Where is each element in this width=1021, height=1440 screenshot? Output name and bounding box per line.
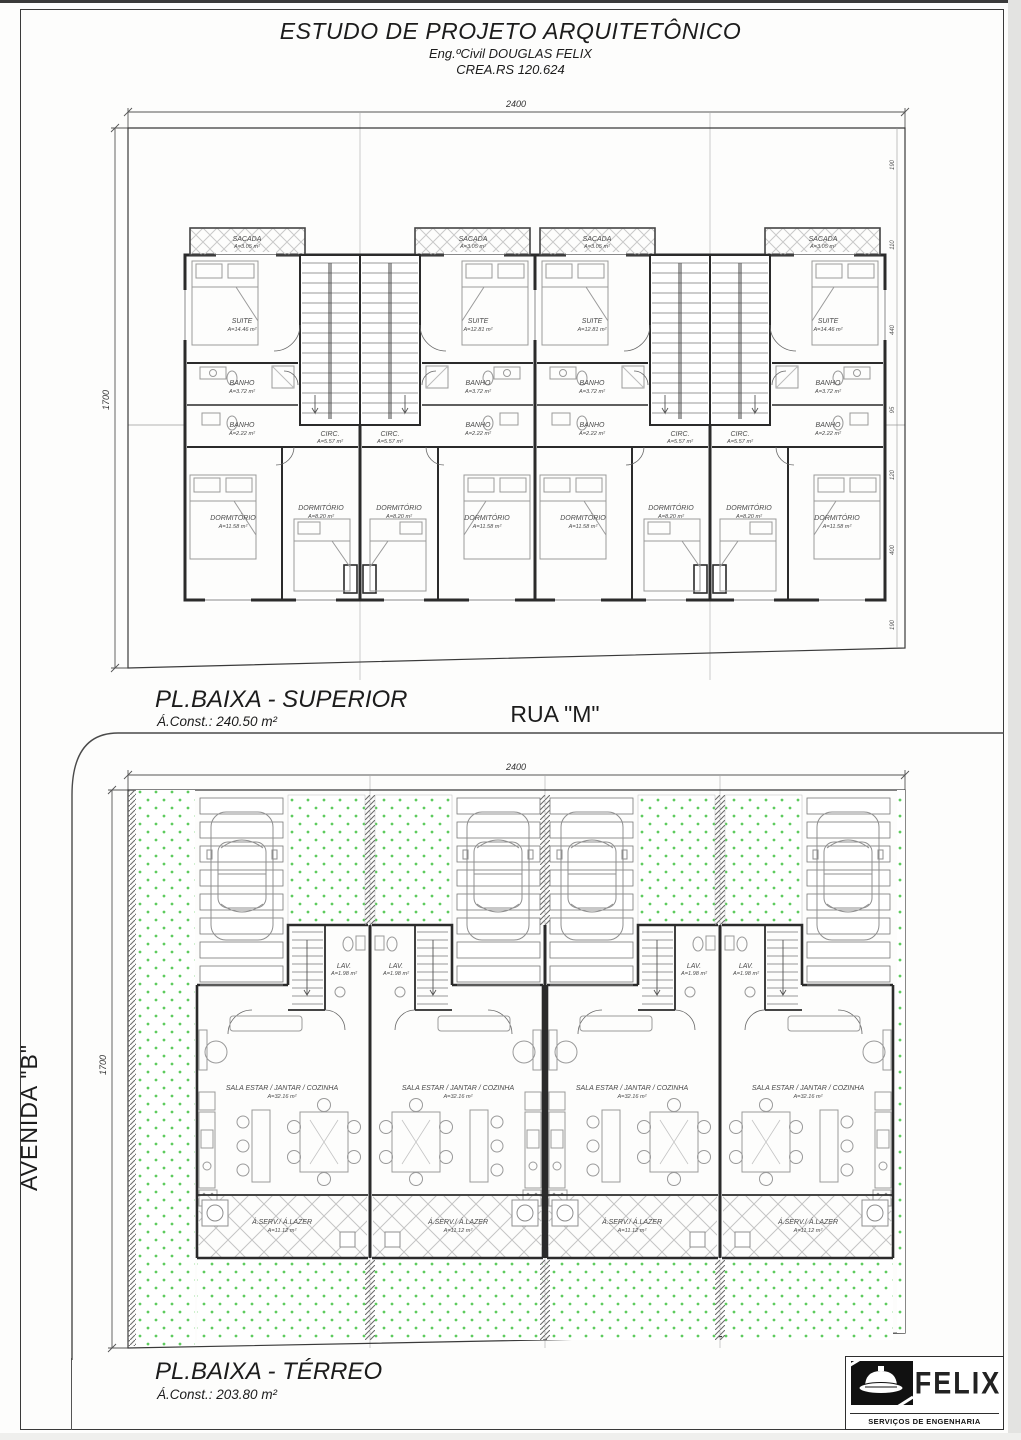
room-label: BANHO xyxy=(580,380,605,387)
avenue-line-extension xyxy=(71,1358,72,1430)
upper-unit-2 xyxy=(360,228,538,603)
room-label: SUITE xyxy=(818,318,839,325)
dimension-label: 1700 xyxy=(101,390,111,410)
room-area: A=11.58 m² xyxy=(472,524,503,530)
room-label: DORMITÓRIO xyxy=(648,503,694,512)
room-label: LAV. xyxy=(739,963,753,970)
room-area: A=11.58 m² xyxy=(568,524,599,530)
room-area: A=11.58 m² xyxy=(822,524,853,530)
room-label: SUITE xyxy=(582,318,603,325)
room-area: A=8.20 m² xyxy=(385,514,413,520)
lot-boundary-wall xyxy=(128,790,136,1346)
dimension-label: 400 xyxy=(890,544,896,555)
room-label: SACADA xyxy=(809,236,838,243)
room-label: BANHO xyxy=(466,422,491,429)
upper-unit-1 xyxy=(183,228,361,603)
room-label: SALA ESTAR / JANTAR / COZINHA xyxy=(576,1085,689,1092)
room-label: DORMITÓRIO xyxy=(464,513,510,522)
room-label: SALA ESTAR / JANTAR / COZINHA xyxy=(402,1085,515,1092)
room-label: SALA ESTAR / JANTAR / COZINHA xyxy=(226,1085,339,1092)
dimension-label: 1700 xyxy=(98,1055,108,1075)
room-area: A=3.72 m² xyxy=(228,389,256,395)
room-label: BANHO xyxy=(230,380,255,387)
ground-unit-1 xyxy=(197,795,368,1340)
room-area: A=11.58 m² xyxy=(218,524,249,530)
room-area: A=5.57 m² xyxy=(316,439,344,445)
dimension-label: 120 xyxy=(890,469,896,480)
room-label: Á.SERV./ Á.LAZER xyxy=(427,1217,488,1226)
logo-tagline: SERVIÇOS DE ENGENHARIA xyxy=(850,1413,999,1426)
dimension-label: 95 xyxy=(890,406,896,413)
room-label: CIRC. xyxy=(730,431,749,438)
room-label: CIRC. xyxy=(670,431,689,438)
room-label: LAV. xyxy=(687,963,701,970)
room-area: A=5.57 m² xyxy=(726,439,754,445)
room-label: DORMITÓRIO xyxy=(814,513,860,522)
room-area: A=1.98 m² xyxy=(732,971,760,977)
ground-unit-3 xyxy=(547,795,718,1340)
room-area: A=32.16 m² xyxy=(266,1094,297,1100)
drawing-sheet: ESTUDO DE PROJETO ARQUITETÔNICO Eng.ºCiv… xyxy=(0,0,1021,1440)
room-label: DORMITÓRIO xyxy=(210,513,256,522)
upper-floor-plan: 2400 1700 SACADAA=3.05 m² SACADAA=3.05 m… xyxy=(0,95,1021,705)
room-area: A=32.16 m² xyxy=(442,1094,473,1100)
room-area: A=2.22 m² xyxy=(464,431,492,437)
room-area: A=3.72 m² xyxy=(464,389,492,395)
room-area: A=3.72 m² xyxy=(578,389,606,395)
dimension-label: 440 xyxy=(890,324,896,335)
room-area: A=1.98 m² xyxy=(330,971,358,977)
room-label: DORMITÓRIO xyxy=(726,503,772,512)
room-area: A=8.20 m² xyxy=(735,514,763,520)
room-label: LAV. xyxy=(337,963,351,970)
room-area: A=32.16 m² xyxy=(792,1094,823,1100)
sheet-top-edge xyxy=(0,0,1021,3)
room-area: A=3.05 m² xyxy=(233,244,261,250)
room-area: A=12.81 m² xyxy=(462,327,493,333)
scan-edge-bottom xyxy=(0,1433,1021,1440)
room-area: A=14.46 m² xyxy=(226,327,257,333)
dimension-label: 2400 xyxy=(505,99,526,109)
room-area: A=5.57 m² xyxy=(376,439,404,445)
hard-hat-icon xyxy=(851,1361,913,1405)
room-label: DORMITÓRIO xyxy=(376,503,422,512)
engineer-name: Eng.ºCivil DOUGLAS FELIX xyxy=(0,46,1021,61)
crea-number: CREA.RS 120.624 xyxy=(0,62,1021,77)
room-label: Á.SERV./ Á.LAZER xyxy=(601,1217,662,1226)
dimension-label: 190 xyxy=(890,619,896,630)
room-label: CIRC. xyxy=(380,431,399,438)
room-area: A=8.20 m² xyxy=(657,514,685,520)
room-area: A=11.12 m² xyxy=(617,1228,648,1234)
upper-unit-4 xyxy=(710,228,888,603)
company-logo: FELIX SERVIÇOS DE ENGENHARIA xyxy=(845,1356,1004,1430)
ground-unit-2 xyxy=(372,795,543,1340)
room-label: BANHO xyxy=(816,380,841,387)
dimension-label: 190 xyxy=(890,159,896,170)
room-area: A=8.20 m² xyxy=(307,514,335,520)
room-area: A=3.05 m² xyxy=(583,244,611,250)
room-label: SUITE xyxy=(232,318,253,325)
room-label: BANHO xyxy=(580,422,605,429)
logo-brand-name: FELIX xyxy=(913,1365,1003,1401)
ground-plan-built-area: Á.Const.: 203.80 m² xyxy=(157,1387,277,1402)
room-area: A=3.05 m² xyxy=(809,244,837,250)
room-label: LAV. xyxy=(389,963,403,970)
room-label: SACADA xyxy=(459,236,488,243)
room-label: SACADA xyxy=(233,236,262,243)
upper-side-dims: 190 110 440 95 120 400 190 xyxy=(890,128,897,648)
room-label: SALA ESTAR / JANTAR / COZINHA xyxy=(752,1085,865,1092)
dimension-label: 2400 xyxy=(505,762,526,772)
room-label: BANHO xyxy=(466,380,491,387)
room-area: A=2.22 m² xyxy=(228,431,256,437)
room-area: A=1.98 m² xyxy=(680,971,708,977)
room-label: Á.SERV./ Á.LAZER xyxy=(251,1217,312,1226)
room-area: A=11.12 m² xyxy=(793,1228,824,1234)
room-label: BANHO xyxy=(816,422,841,429)
ground-unit-4 xyxy=(722,795,893,1340)
room-area: A=12.81 m² xyxy=(576,327,607,333)
room-label: DORMITÓRIO xyxy=(560,513,606,522)
room-area: A=11.12 m² xyxy=(443,1228,474,1234)
upper-unit-3 xyxy=(533,228,711,603)
side-yard-grass xyxy=(136,790,195,1346)
ground-floor-plan: 2400 1700 SALA ESTAR / JA xyxy=(0,700,1021,1360)
room-label: Á.SERV./ Á.LAZER xyxy=(777,1217,838,1226)
room-label: CIRC. xyxy=(320,431,339,438)
logo-emblem xyxy=(851,1361,913,1405)
room-label: SACADA xyxy=(583,236,612,243)
room-label: BANHO xyxy=(230,422,255,429)
room-area: A=2.22 m² xyxy=(578,431,606,437)
page-title: ESTUDO DE PROJETO ARQUITETÔNICO xyxy=(0,18,1021,45)
dimension-label: 110 xyxy=(890,240,896,250)
room-area: A=11.12 m² xyxy=(267,1228,298,1234)
room-area: A=3.72 m² xyxy=(814,389,842,395)
room-area: A=1.98 m² xyxy=(382,971,410,977)
room-label: DORMITÓRIO xyxy=(298,503,344,512)
room-area: A=32.16 m² xyxy=(616,1094,647,1100)
ground-plan-title: PL.BAIXA - TÉRREO xyxy=(155,1358,382,1386)
room-area: A=14.46 m² xyxy=(812,327,843,333)
room-area: A=5.57 m² xyxy=(666,439,694,445)
right-yard-grass xyxy=(897,790,905,1333)
upper-building xyxy=(183,228,888,603)
room-area: A=2.22 m² xyxy=(814,431,842,437)
room-area: A=3.05 m² xyxy=(459,244,487,250)
room-label: SUITE xyxy=(468,318,489,325)
